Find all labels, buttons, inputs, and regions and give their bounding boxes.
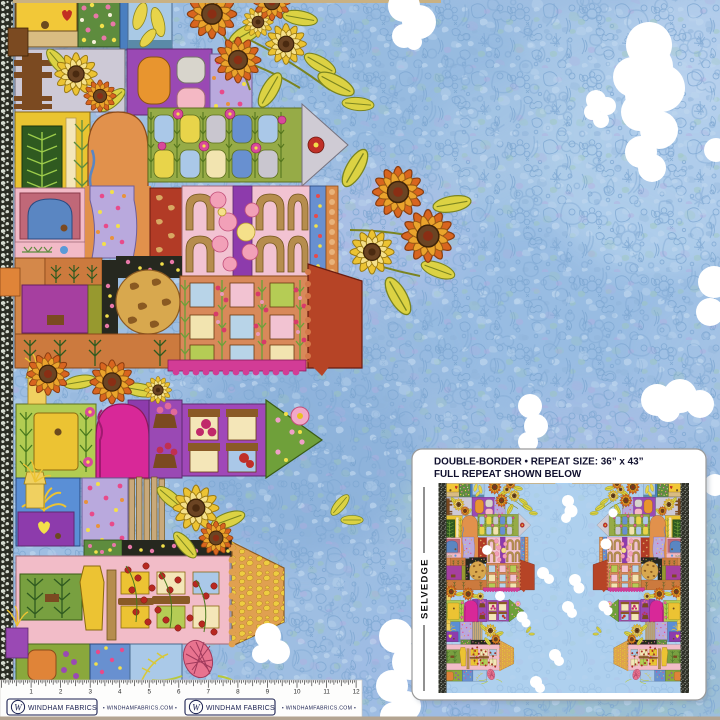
svg-text:WINDHAM FABRICS: WINDHAM FABRICS bbox=[28, 705, 97, 712]
svg-text:10: 10 bbox=[293, 689, 301, 696]
svg-text:DOUBLE-BORDER • REPEAT SIZE: 3: DOUBLE-BORDER • REPEAT SIZE: 36” x 43” bbox=[434, 457, 644, 468]
svg-text:6: 6 bbox=[177, 689, 181, 696]
svg-text:7: 7 bbox=[207, 689, 211, 696]
svg-text:• WINDHAMFABRICS.COM •: • WINDHAMFABRICS.COM • bbox=[282, 706, 356, 712]
svg-text:FULL REPEAT SHOWN BELOW: FULL REPEAT SHOWN BELOW bbox=[434, 469, 582, 480]
svg-text:8: 8 bbox=[236, 689, 240, 696]
svg-text:12: 12 bbox=[353, 689, 361, 696]
svg-text:2: 2 bbox=[59, 689, 63, 696]
svg-text:11: 11 bbox=[323, 689, 330, 696]
svg-text:SELVEDGE: SELVEDGE bbox=[420, 558, 431, 619]
svg-text:4: 4 bbox=[118, 689, 122, 696]
svg-text:1: 1 bbox=[29, 689, 33, 696]
svg-text:5: 5 bbox=[147, 689, 151, 696]
svg-text:3: 3 bbox=[88, 689, 92, 696]
svg-text:• WINDHAMFABRICS.COM •: • WINDHAMFABRICS.COM • bbox=[103, 706, 177, 712]
svg-text:9: 9 bbox=[266, 689, 270, 696]
svg-text:WINDHAM FABRICS: WINDHAM FABRICS bbox=[206, 705, 275, 712]
